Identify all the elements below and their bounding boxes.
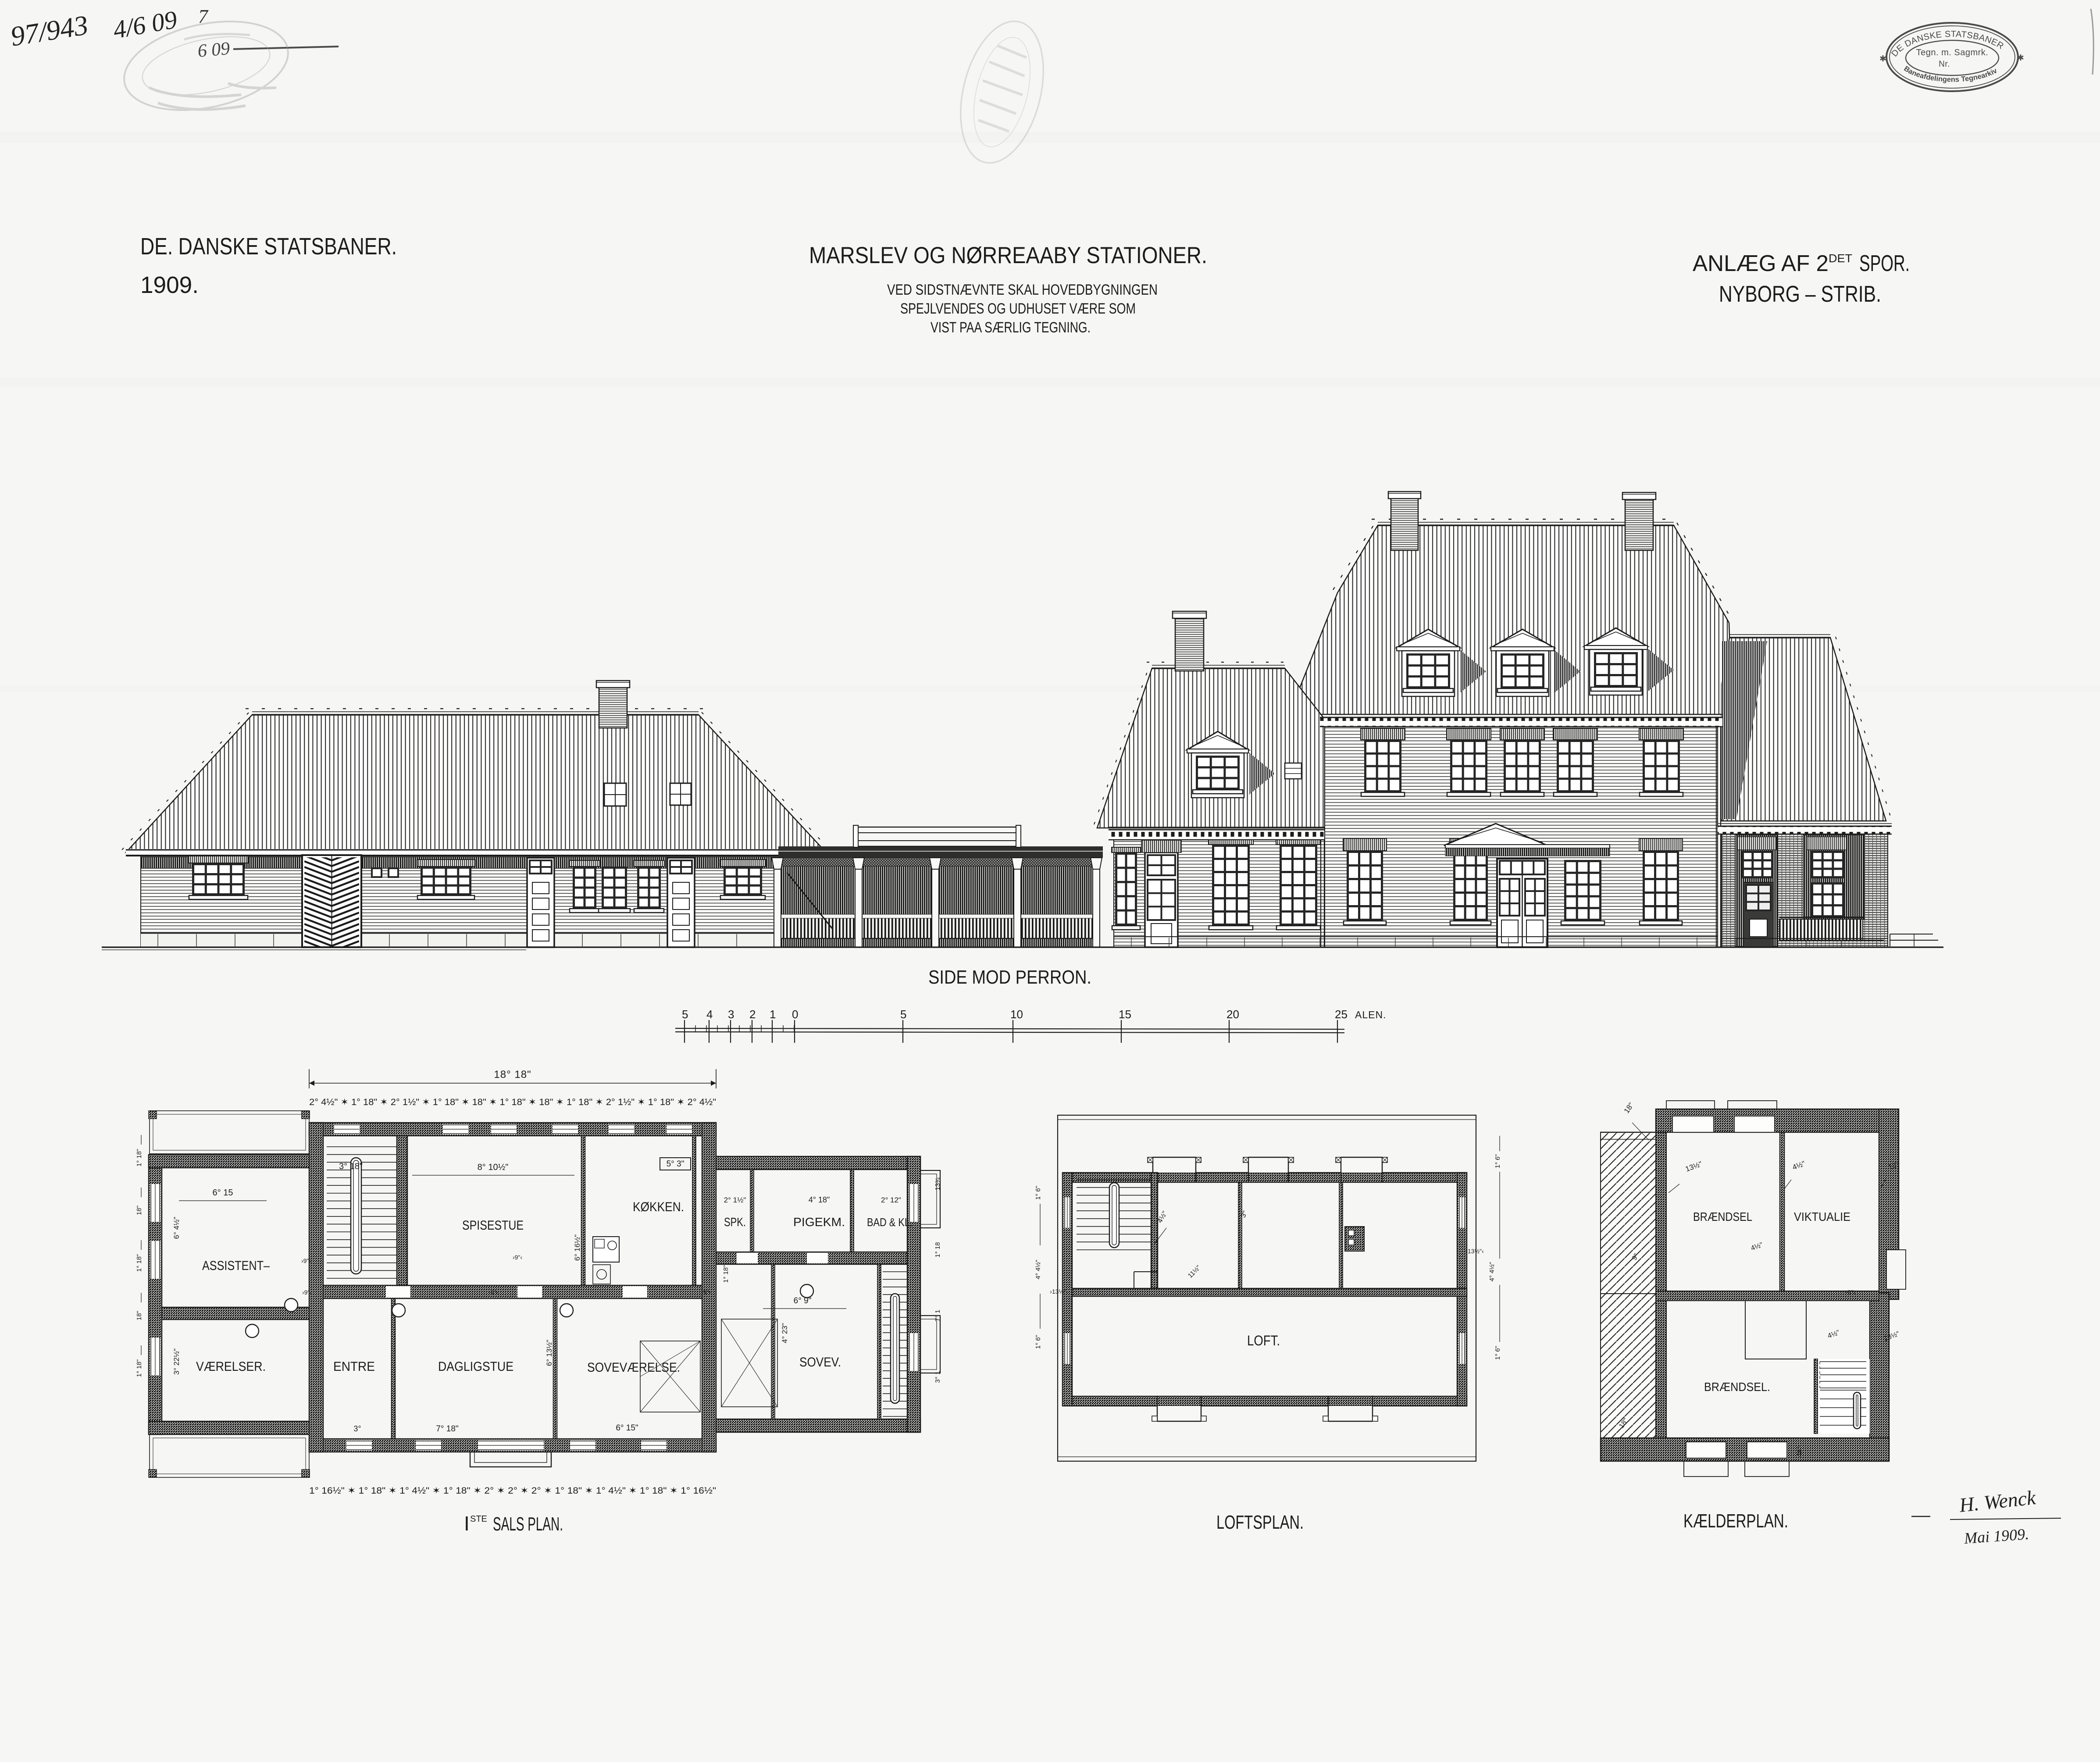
svg-text:3: 3 [728,1008,734,1021]
svg-text:›9"‹: ›9"‹ [1845,1289,1856,1296]
svg-text:KÆLDERPLAN.: KÆLDERPLAN. [1683,1510,1788,1532]
svg-text:6 09: 6 09 [197,39,231,61]
svg-text:›13½"‹: ›13½"‹ [1465,1248,1484,1255]
svg-text:4° 4½": 4° 4½" [1488,1262,1496,1282]
svg-text:4° 23": 4° 23" [781,1323,789,1343]
svg-text:›9"‹: ›9"‹ [488,1289,498,1296]
svg-text:0: 0 [792,1008,798,1021]
svg-text:›13½"‹: ›13½"‹ [1050,1288,1068,1295]
svg-text:DAGLIGSTUE: DAGLIGSTUE [438,1359,513,1374]
svg-text:KØKKEN.: KØKKEN. [633,1200,684,1214]
svg-text:PIGEKM.: PIGEKM. [793,1215,845,1229]
svg-text:✱: ✱ [2017,54,2025,63]
svg-text:8° 10½": 8° 10½" [478,1163,509,1172]
svg-text:6° 15: 6° 15 [213,1188,233,1198]
svg-text:4° 4½": 4° 4½" [1034,1260,1042,1280]
svg-text:1: 1 [770,1008,776,1021]
svg-text:1° 6": 1° 6" [1494,1346,1501,1360]
svg-text:VÆRELSER.: VÆRELSER. [196,1359,266,1374]
svg-text:25: 25 [1335,1008,1348,1021]
svg-text:2° 12": 2° 12" [881,1196,901,1204]
svg-text:7° 1: 7° 1 [934,1310,941,1322]
svg-text:18": 18" [135,1311,143,1320]
svg-text:4: 4 [706,1008,713,1021]
svg-text:1° 18": 1° 18" [722,1265,730,1283]
svg-text:DE. DANSKE STATSBANER.: DE. DANSKE STATSBANER. [140,233,397,260]
svg-text:SPOR.: SPOR. [1859,251,1910,276]
svg-text:›9"‹: ›9"‹ [302,1289,312,1296]
svg-text:2° 4½" ✶ 1° 18" ✶ 2° 1½": 2° 4½" ✶ 1° 18" ✶ 2° 1½" ✶ 1° 18" ✶ 18" … [309,1097,716,1107]
svg-text:I: I [464,1512,470,1535]
svg-text:6° 13½": 6° 13½" [545,1340,553,1366]
svg-text:Tegn. m. Sagmrk.: Tegn. m. Sagmrk. [1916,48,1989,57]
svg-text:Nr.: Nr. [1939,60,1950,69]
svg-text:1° 18": 1° 18" [135,1149,143,1167]
svg-text:MARSLEV OG NØRREAABY STATIONER: MARSLEV OG NØRREAABY STATIONER. [809,243,1207,268]
svg-text:STE: STE [470,1514,487,1524]
svg-text:DET: DET [1829,252,1852,265]
svg-text:1909.: 1909. [140,272,199,298]
svg-text:SPK.: SPK. [724,1215,746,1229]
svg-text:SIDE MOD PERRON.: SIDE MOD PERRON. [928,967,1091,988]
svg-text:✱: ✱ [1879,54,1887,64]
svg-text:›9"‹: ›9"‹ [301,1257,311,1264]
svg-text:SALS PLAN.: SALS PLAN. [493,1513,563,1535]
svg-text:1° 6": 1° 6" [1494,1154,1501,1168]
svg-text:15: 15 [1119,1008,1131,1021]
svg-text:1° 18": 1° 18" [135,1254,143,1272]
svg-text:2° 1½": 2° 1½" [724,1196,746,1204]
svg-text:6° 16½": 6° 16½" [573,1234,581,1261]
svg-text:ENTRE: ENTRE [333,1359,375,1374]
svg-text:NYBORG – STRIB.: NYBORG – STRIB. [1719,282,1881,307]
svg-text:7° 18": 7° 18" [436,1424,458,1434]
svg-text:BRÆNDSEL.: BRÆNDSEL. [1704,1380,1770,1394]
svg-text:VIKTUALIE: VIKTUALIE [1794,1210,1850,1223]
svg-text:BAD & KL.: BAD & KL. [867,1216,913,1229]
svg-text:6° 15": 6° 15" [616,1423,638,1433]
svg-text:›18"‹: ›18"‹ [1796,1445,1803,1458]
svg-text:LOFT.: LOFT. [1247,1333,1280,1348]
svg-text:SOVEVÆRELSE.: SOVEVÆRELSE. [587,1360,680,1375]
svg-text:2: 2 [749,1008,756,1021]
svg-text:1° 6": 1° 6" [1034,1186,1042,1200]
svg-text:18° 18": 18° 18" [494,1069,531,1081]
svg-text:6° 9": 6° 9" [794,1296,812,1305]
svg-text:5° 3": 5° 3" [667,1159,685,1169]
svg-text:1° 18: 1° 18 [934,1242,941,1257]
svg-text:1° 18": 1° 18" [135,1359,143,1377]
svg-text:18": 18" [135,1206,143,1215]
svg-text:1° 6": 1° 6" [1034,1335,1042,1349]
svg-text:3° 22½": 3° 22½" [172,1348,181,1375]
svg-text:4° 18": 4° 18" [809,1195,830,1204]
svg-text:1° 16½" ✶ 1° 18" ✶ 1° 4½": 1° 16½" ✶ 1° 18" ✶ 1° 4½" ✶ 1° 18" ✶ 2° … [309,1486,716,1496]
svg-text:3°: 3° [353,1424,361,1433]
svg-text:VIST PAA SÆRLIG TEGNING.: VIST PAA SÆRLIG TEGNING. [931,319,1091,336]
svg-text:›9"‹: ›9"‹ [513,1254,522,1261]
svg-text:5: 5 [682,1008,688,1021]
svg-text:5: 5 [900,1008,906,1021]
svg-text:ALEN.: ALEN. [1355,1009,1386,1020]
svg-text:SPEJLVENDES OG UDHUSET VÆRE SO: SPEJLVENDES OG UDHUSET VÆRE SOM [900,300,1136,317]
svg-text:3° 18": 3° 18" [339,1162,363,1171]
svg-text:›9"‹: ›9"‹ [701,1289,711,1296]
svg-text:10: 10 [1010,1008,1023,1021]
svg-text:SOVEV.: SOVEV. [799,1355,841,1370]
svg-text:VED SIDSTNÆVNTE SKAL HOVEDBYGN: VED SIDSTNÆVNTE SKAL HOVEDBYGNINGEN [887,282,1158,298]
svg-text:ASSISTENT–: ASSISTENT– [202,1259,270,1273]
svg-text:BRÆNDSEL: BRÆNDSEL [1693,1210,1752,1223]
svg-text:6° 4½": 6° 4½" [172,1217,181,1239]
svg-text:LOFTSPLAN.: LOFTSPLAN. [1216,1512,1304,1533]
svg-text:ANLÆG AF 2: ANLÆG AF 2 [1693,251,1829,276]
svg-text:13¾: 13¾ [934,1177,941,1191]
svg-text:SPISESTUE: SPISESTUE [462,1218,524,1233]
svg-text:3° 1: 3° 1 [934,1371,941,1383]
svg-text:20: 20 [1226,1008,1239,1021]
